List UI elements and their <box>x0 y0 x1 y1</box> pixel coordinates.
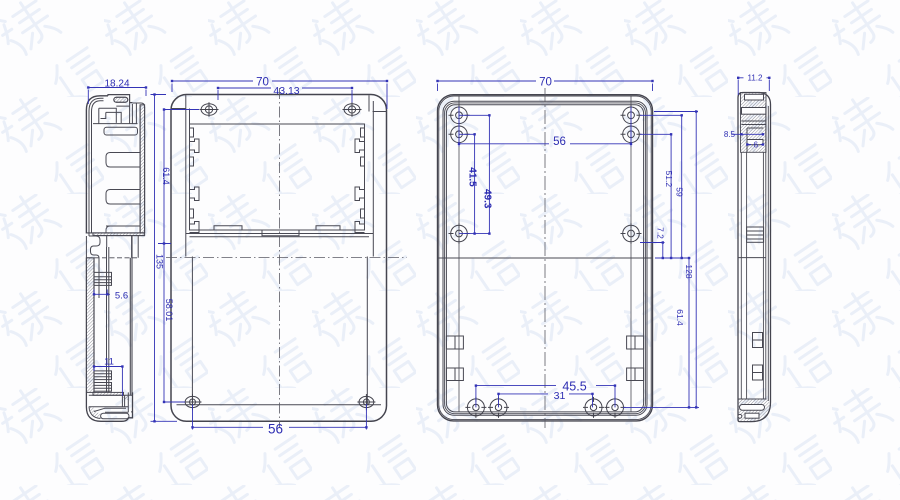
svg-text:51.2: 51.2 <box>664 171 674 188</box>
svg-text:41.5: 41.5 <box>466 167 477 187</box>
svg-text:45.5: 45.5 <box>562 379 586 393</box>
svg-text:56: 56 <box>553 136 566 148</box>
svg-text:7.2: 7.2 <box>656 227 666 239</box>
svg-text:70: 70 <box>539 76 552 88</box>
svg-text:31: 31 <box>554 390 566 402</box>
svg-text:11.2: 11.2 <box>748 73 764 82</box>
svg-text:11: 11 <box>104 357 114 368</box>
svg-text:43.13: 43.13 <box>273 85 299 97</box>
svg-text:61.4: 61.4 <box>161 167 171 185</box>
svg-text:58.01: 58.01 <box>164 299 174 322</box>
svg-text:56: 56 <box>268 421 283 436</box>
svg-text:8.5: 8.5 <box>724 130 736 139</box>
svg-text:49.3: 49.3 <box>482 189 493 209</box>
svg-text:135: 135 <box>155 254 165 269</box>
svg-text:61.4: 61.4 <box>675 309 685 326</box>
svg-text:70: 70 <box>256 76 269 88</box>
svg-text:128: 128 <box>684 264 694 278</box>
svg-text:18.24: 18.24 <box>104 78 129 89</box>
svg-text:59: 59 <box>674 187 684 197</box>
svg-text:6: 6 <box>753 140 758 150</box>
svg-text:5.6: 5.6 <box>115 290 128 301</box>
